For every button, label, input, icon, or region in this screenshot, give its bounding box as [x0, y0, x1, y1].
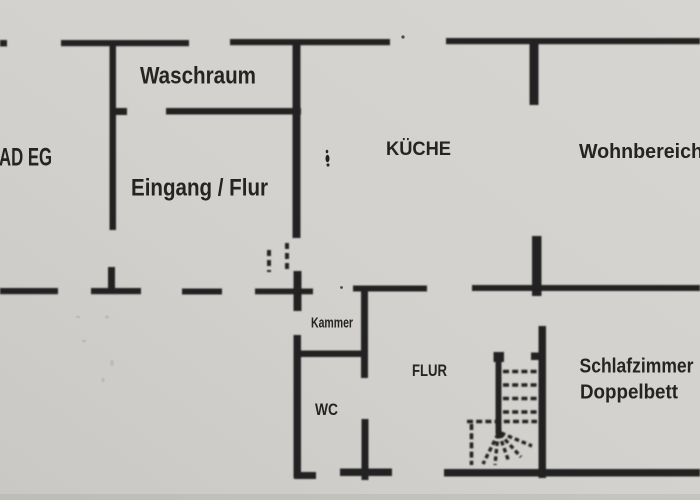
- svg-text:FLUR: FLUR: [412, 361, 447, 380]
- svg-text:Schlafzimmer: Schlafzimmer: [580, 356, 694, 378]
- svg-text:KÜCHE: KÜCHE: [386, 137, 451, 160]
- svg-text:Wohnbereich: Wohnbereich: [579, 140, 700, 163]
- svg-text:WC: WC: [315, 401, 338, 419]
- svg-text:Doppelbett: Doppelbett: [580, 382, 678, 404]
- svg-text:Eingang / Flur: Eingang / Flur: [131, 175, 268, 202]
- svg-text:Waschraum: Waschraum: [140, 63, 256, 90]
- svg-text:Kammer: Kammer: [311, 315, 353, 332]
- svg-text:AD EG: AD EG: [0, 144, 52, 172]
